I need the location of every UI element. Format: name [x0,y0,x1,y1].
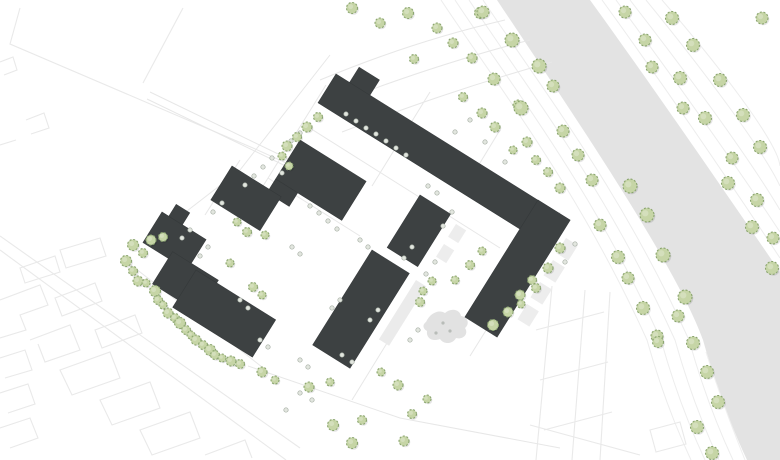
tree-highlight [434,25,439,30]
shrub [317,211,321,215]
shrub [298,391,302,395]
tree-highlight [429,278,433,282]
tree-highlight [200,342,204,346]
tree-highlight [702,367,708,373]
tree-highlight [613,252,619,258]
shrub [453,130,457,134]
tree-highlight [404,9,409,14]
tree-highlight [315,114,319,118]
tree-highlight [329,421,334,426]
tree-highlight [304,124,309,129]
tree-highlight [641,36,646,41]
tree-highlight [758,14,763,19]
shrub [433,260,437,264]
tree-highlight [545,169,549,173]
tree-highlight [183,327,187,331]
tree-highlight [452,277,456,281]
tree-highlight [545,265,550,270]
shrub [238,298,242,302]
tree-highlight [674,312,679,317]
shrub [573,242,577,246]
playground-dot [448,329,451,332]
tree-highlight [700,113,706,119]
site-plan-canvas [0,0,780,460]
tree-highlight [624,274,629,279]
tree-highlight [715,75,721,81]
tree-highlight [172,315,176,319]
tree-highlight [160,302,164,306]
tree-highlight [401,438,406,443]
tree-highlight [284,143,289,148]
tree-highlight [234,219,238,223]
tree-highlight [679,104,684,109]
tree-highlight [294,134,298,138]
shrub [426,184,430,188]
tree-highlight [479,248,483,252]
tree-highlight [517,292,522,297]
tree-highlight [467,262,471,266]
shrub [188,228,192,232]
tree-highlight [557,185,562,190]
tree-highlight [557,245,562,250]
shrub [310,398,314,402]
tree-highlight [395,382,400,387]
shrub [404,153,408,157]
shrub [335,227,339,231]
tree-highlight [489,321,494,326]
tree-highlight [411,56,415,60]
tree-highlight [642,210,648,216]
tree-highlight [348,439,353,444]
tree-highlight [130,268,134,272]
tree-highlight [648,63,653,68]
tree-highlight [723,178,729,184]
shrub [468,118,472,122]
tree-highlight [155,297,159,301]
shrub [284,408,288,412]
playground-dot [434,331,437,334]
tree-highlight [518,301,522,305]
shrub [450,210,454,214]
tree-highlight [228,358,233,363]
tree-highlight [262,232,266,236]
tree-highlight [259,292,263,296]
tree-highlight [237,361,241,365]
tree-highlight [574,151,579,156]
shrub [424,272,428,276]
shrub [198,254,202,258]
tree-highlight [510,147,514,151]
tree-highlight [596,221,601,226]
tree-highlight [680,292,686,298]
shrub [416,328,420,332]
shrub [338,298,342,302]
shrub [306,365,310,369]
tree-highlight [653,332,658,337]
shrub [394,146,398,150]
tree-highlight [588,176,593,181]
shrub [252,174,256,178]
tree-highlight [752,195,758,201]
tree-highlight [306,384,311,389]
tree-highlight [469,55,474,60]
shrub [243,183,247,187]
tree-highlight [460,94,464,98]
tree-highlight [533,157,537,161]
tree-highlight [738,110,744,116]
shrub [298,252,302,256]
shrub [270,156,274,160]
tree-highlight [193,337,198,342]
shrub [374,132,378,136]
tree-highlight [122,257,127,262]
tree-highlight [143,280,147,284]
tree-highlight [129,241,134,246]
shrub [298,358,302,362]
shrub [290,245,294,249]
shrub [563,260,567,264]
tree-highlight [479,110,484,115]
tree-highlight [151,287,156,292]
tree-highlight [348,4,353,9]
shrub [483,140,487,144]
tree-highlight [450,40,455,45]
tree-highlight [206,346,211,351]
tree-highlight [524,139,529,144]
shrub [364,126,368,130]
tree-highlight [492,124,497,129]
tree-highlight [148,237,153,242]
shrub [350,360,354,364]
shrub [206,245,210,249]
shrub [384,139,388,143]
tree-highlight [165,310,170,315]
tree-highlight [188,332,192,336]
tree-highlight [529,277,533,281]
tree-highlight [227,260,231,264]
shrub [180,236,184,240]
shrub [410,245,414,249]
tree-highlight [417,299,421,303]
tree-highlight [534,61,540,67]
tree-highlight [212,352,216,356]
tree-highlight [479,8,484,13]
tree-highlight [654,338,659,343]
tree-highlight [219,355,223,359]
tree-highlight [176,319,181,324]
tree-highlight [327,379,331,383]
tree-highlight [377,20,382,25]
shrub [408,338,412,342]
tree-highlight [621,8,626,13]
tree-highlight [769,234,774,239]
tree-highlight [755,142,761,148]
tree-highlight [286,163,290,167]
shrub [354,119,358,123]
tree-highlight [279,153,283,157]
shrub [340,353,344,357]
tree-highlight [692,422,698,428]
tree-highlight [505,309,510,314]
tree-highlight [409,411,413,415]
tree-highlight [667,13,673,19]
tree-highlight [244,229,248,233]
shrub [402,256,406,260]
shrub [376,308,380,312]
shrub [435,191,439,195]
shrub [258,338,262,342]
tree-highlight [378,369,382,373]
shrub [308,204,312,208]
shrub [211,210,215,214]
tree-highlight [728,154,733,159]
tree-highlight [259,369,264,374]
tree-highlight [272,377,276,381]
shrub [246,306,250,310]
tree-highlight [767,263,773,269]
tree-highlight [424,396,428,400]
tree-highlight [713,397,719,403]
shrub [366,245,370,249]
shrub [330,306,334,310]
tree-highlight [507,35,513,41]
tree-highlight [675,73,681,79]
shrub [441,224,445,228]
tree-highlight [533,285,537,289]
tree-highlight [490,75,495,80]
tree-highlight [250,284,254,288]
tree-highlight [747,222,753,228]
tree-highlight [638,303,644,309]
tree-highlight [135,278,140,283]
shrub [368,318,372,322]
tree-highlight [658,250,664,256]
shrub [266,345,270,349]
tree-highlight [625,181,631,187]
tree-highlight [420,288,424,292]
shrub [326,219,330,223]
shrub [358,238,362,242]
tree-highlight [359,417,363,421]
tree-highlight [688,338,694,344]
shrub [220,201,224,205]
shrub [503,160,507,164]
tree-highlight [707,448,713,454]
site-plan-drawing [0,0,780,460]
tree-highlight [549,82,554,87]
shrub [261,165,265,169]
tree-highlight [140,250,144,254]
shrub [344,112,348,116]
playground-dot [441,321,444,324]
tree-highlight [688,40,694,46]
tree-highlight [516,103,522,109]
shrub [280,171,284,175]
tree-highlight [559,127,564,132]
tree-highlight [160,234,164,238]
